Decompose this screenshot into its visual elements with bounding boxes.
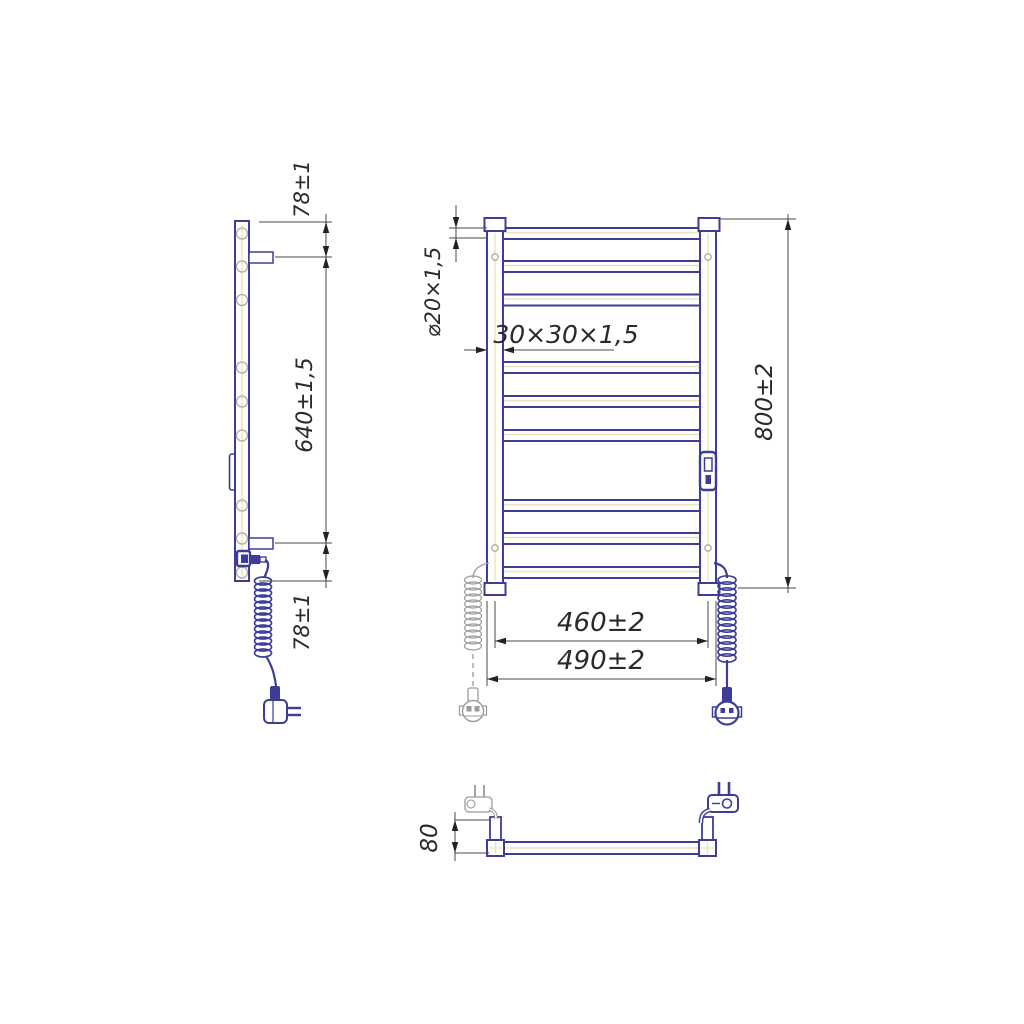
riser-right (702, 817, 713, 841)
post-left-cap-top (485, 218, 506, 231)
top-dimension-lines (455, 812, 491, 861)
dim-label-tube-section: ⌀20×1,5 (421, 247, 445, 337)
switch-button (706, 475, 712, 484)
post-left-cap-bottom (485, 583, 506, 595)
post-right-cap-top (699, 218, 720, 231)
dim-label-rail-span: 460±2 (557, 608, 645, 638)
front-view: ⌀20×1,5 30×30×1,5 800±2 460±2 490±2 (421, 205, 796, 725)
post-right-cap-bottom (699, 583, 720, 595)
mount-bracket-top (249, 252, 273, 263)
top-view: 80 (417, 782, 738, 861)
side-view: 78±1 640±1,5 78±1 (230, 160, 333, 723)
rungs (503, 228, 700, 578)
control-switch (700, 452, 716, 490)
power-plug-front (713, 687, 742, 725)
dim-label-top-offset: 78±1 (290, 160, 314, 218)
dim-label-depth: 80 (417, 823, 443, 852)
dim-label-bottom-offset: 78±1 (290, 593, 314, 651)
mount-bracket-bottom (249, 538, 273, 549)
plug-top-phantom (465, 785, 496, 819)
riser-left (490, 817, 501, 841)
drawing-page: 78±1 640±1,5 78±1 (0, 0, 1024, 1024)
power-plug-side (264, 686, 301, 723)
power-cord-coil-side (255, 577, 272, 657)
dim-label-post-profile: 30×30×1,5 (493, 320, 638, 349)
drawing-canvas: 78±1 640±1,5 78±1 (0, 0, 1024, 1024)
power-cord-coil-front (718, 576, 736, 662)
cord-tail-side (266, 656, 276, 686)
dim-label-overall-width: 490±2 (557, 646, 645, 676)
dim-label-mount-span: 640±1,5 (293, 357, 318, 452)
switch-indicator (705, 458, 713, 471)
dim-label-height: 800±2 (752, 363, 778, 441)
